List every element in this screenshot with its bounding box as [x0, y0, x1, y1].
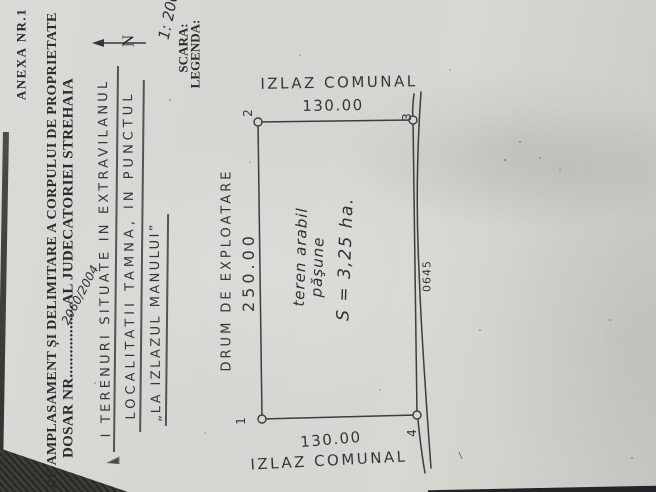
scanned-plan-photo: ANEXA NR.1 PLAN DE AMPLASAMENT ȘI DELIMI… [0, 0, 656, 492]
corner-point-2 [254, 118, 262, 126]
road-left-line-bottom [418, 420, 425, 473]
top-dimension: 130.00 [302, 98, 364, 114]
left-dimension: 250.00 [241, 232, 257, 312]
stray-tick [459, 452, 462, 459]
top-boundary-label: IZLAZ COMUNAL [260, 74, 417, 92]
legend-label: LEGENDA: [189, 20, 202, 89]
main-title: PLAN DE AMPLASAMENT ȘI DELIMITARE A CORP… [46, 12, 60, 492]
north-letter: N [120, 35, 137, 47]
handwritten-title-line-1: I TERENURI SITUATE IN EXTRAVILANUL [97, 79, 113, 438]
case-line: DOSAR NR..................AL JUDECATORIE… [62, 78, 77, 458]
corner-point-4 [413, 411, 421, 419]
road-number: 0645 [422, 260, 433, 292]
corner-label-2: 2 [242, 109, 254, 117]
stray-mark [107, 457, 119, 464]
toner-speckles [94, 54, 633, 459]
handwritten-title-line-3: „LA IZLAZUL MANULUI” [149, 222, 164, 422]
area-label: S = 3,25 ha. [335, 197, 356, 321]
corner-label-4: 4 [406, 429, 418, 437]
corner-label-1: 1 [235, 417, 247, 425]
land-use-line-2: păşune [309, 236, 326, 297]
annex-label: ANEXA NR.1 [15, 8, 28, 100]
corner-point-1 [258, 415, 266, 423]
handwritten-title-line-2: LOCALITATII TAMNA, IN PUNCTUL [122, 90, 138, 419]
road-label: DRUM DE EXPLOATARE [221, 169, 234, 372]
corner-label-3: 3 [401, 113, 413, 121]
